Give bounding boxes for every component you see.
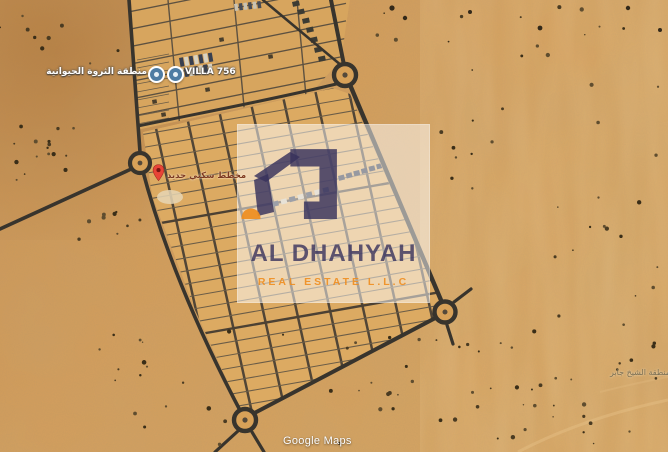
watermark-company-name: AL DHAHYAH xyxy=(237,240,430,268)
poi-icon xyxy=(154,72,159,77)
watermark: AL DHAHYAH REAL ESTATE L.L.C xyxy=(237,124,430,303)
watermark-company-subtitle: REAL ESTATE L.L.C xyxy=(237,276,430,288)
aldhahyah-logo-icon xyxy=(237,124,387,219)
poi-icon xyxy=(173,72,178,77)
pin-icon xyxy=(152,164,165,182)
roundabout-northwest xyxy=(130,153,150,173)
poi-marker-villa-756[interactable] xyxy=(167,66,184,83)
roundabout-north xyxy=(334,64,356,86)
roundabout-south xyxy=(234,409,256,431)
roundabout-east xyxy=(435,302,456,323)
satellite-map-view[interactable]: AL DHAHYAH REAL ESTATE L.L.C منطقة الثرو… xyxy=(0,0,668,452)
sand-patch xyxy=(157,190,183,204)
poi-marker-livestock-area[interactable] xyxy=(148,66,165,83)
